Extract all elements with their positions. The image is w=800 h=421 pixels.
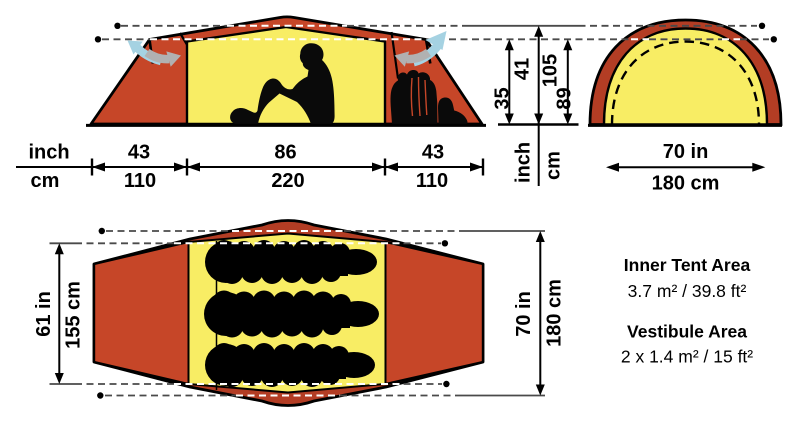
svg-text:Vestibule Area: Vestibule Area [627, 322, 747, 342]
svg-text:155 cm: 155 cm [62, 281, 84, 349]
svg-text:35: 35 [491, 87, 513, 109]
svg-text:105: 105 [539, 54, 561, 87]
svg-text:41: 41 [511, 58, 533, 80]
svg-text:cm: cm [31, 170, 60, 192]
svg-text:110: 110 [416, 170, 448, 192]
svg-text:110: 110 [124, 170, 156, 192]
svg-text:2 x 1.4 m² / 15 ft²: 2 x 1.4 m² / 15 ft² [621, 347, 753, 367]
svg-text:61 in: 61 in [33, 291, 55, 337]
svg-text:43: 43 [128, 142, 150, 164]
svg-text:43: 43 [422, 142, 444, 164]
svg-text:220: 220 [271, 170, 304, 192]
svg-text:70 in: 70 in [663, 141, 709, 163]
svg-text:180 cm: 180 cm [543, 279, 565, 347]
svg-text:70 in: 70 in [513, 291, 535, 337]
svg-text:inch: inch [512, 142, 534, 183]
svg-text:89: 89 [553, 87, 575, 109]
svg-text:180 cm: 180 cm [652, 173, 720, 195]
svg-text:3.7 m² / 39.8 ft²: 3.7 m² / 39.8 ft² [628, 281, 747, 301]
svg-text:cm: cm [542, 151, 564, 180]
svg-text:inch: inch [28, 142, 69, 164]
svg-text:86: 86 [274, 142, 296, 164]
svg-text:Inner Tent Area: Inner Tent Area [624, 255, 751, 275]
